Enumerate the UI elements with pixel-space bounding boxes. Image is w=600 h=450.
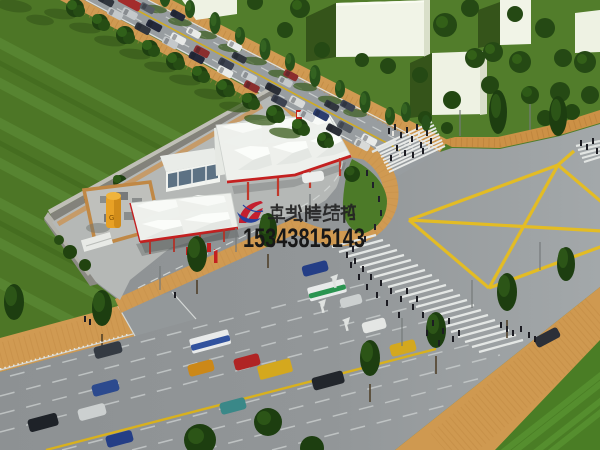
- svg-text:G: G: [109, 215, 114, 222]
- svg-text:15343815143: 15343815143: [243, 223, 365, 253]
